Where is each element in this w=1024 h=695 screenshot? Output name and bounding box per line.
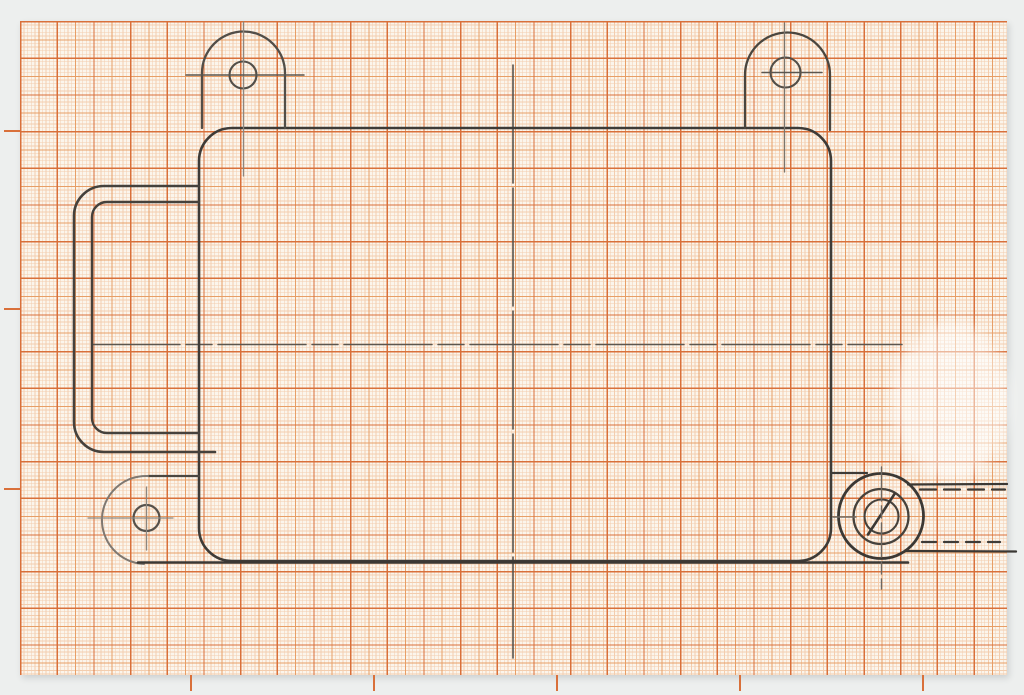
- handle-outer-outline: [74, 186, 215, 452]
- scanned-drawing-background: [0, 0, 1024, 695]
- boss-side-bottom-line: [906, 551, 1016, 552]
- handle-inner-outline: [92, 202, 199, 433]
- pencil-drawing-layer: [0, 0, 1024, 695]
- boss-side-top-line: [908, 484, 1007, 485]
- tab-top-right-outline: [745, 33, 830, 131]
- tab-bottom-left-arc: [102, 476, 148, 564]
